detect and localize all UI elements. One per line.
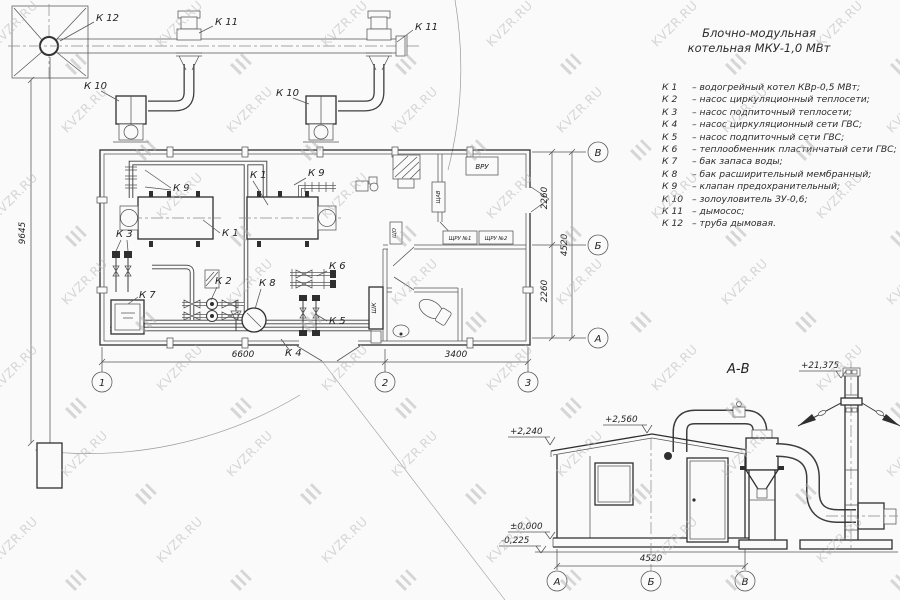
- guy-anchor-block: [37, 443, 62, 488]
- label-k9-left: К 9: [173, 183, 190, 194]
- mark-eaves: +2,240: [510, 427, 543, 437]
- shav-label: ЩАВ: [436, 190, 442, 203]
- label-k6: К 6: [329, 261, 346, 272]
- ash-collector-k10-right: К 10: [276, 88, 339, 142]
- duct-valve: [733, 407, 745, 417]
- label-k5: К 5: [329, 316, 346, 327]
- axis-3: 3: [525, 378, 531, 389]
- label-k7: К 7: [139, 290, 156, 301]
- section-title: А-В: [726, 362, 750, 377]
- flue-collector: [356, 155, 420, 191]
- title-line-1: Блочно-модульная: [628, 26, 890, 41]
- title-line-2: котельная МКУ-1,0 МВт: [628, 41, 890, 56]
- sho-label: ЩО: [392, 228, 398, 238]
- drawing-title: Блочно-модульная котельная МКУ-1,0 МВт: [628, 26, 890, 56]
- window: [595, 463, 633, 505]
- dim-depth-total: 4520: [560, 233, 570, 256]
- chimney-k12-plan: К 12: [12, 4, 119, 82]
- legend-items: К 1– водогрейный котел КВр-0,5 МВт; К 2–…: [628, 82, 890, 231]
- elevation-fan-and-stack: [776, 362, 900, 550]
- burner-circle: [319, 210, 336, 227]
- label-k12: К 12: [96, 13, 119, 24]
- flue-duct-plan: [8, 35, 422, 56]
- safety-valves-k9-left: К 9: [125, 167, 190, 194]
- mark-stack-top: +21,375: [801, 361, 840, 371]
- axis-a: А: [594, 334, 602, 345]
- elev-axis-v: В: [742, 577, 749, 588]
- flue-elbows-plan: [148, 64, 379, 106]
- legend-item: К 3– насос подпиточный теплосети;: [662, 107, 890, 119]
- burner-circle: [121, 210, 138, 227]
- pumps-k3: К 3: [112, 229, 133, 292]
- mark-zero: ±0,000: [510, 522, 543, 532]
- boiler-k1-left: [120, 191, 221, 247]
- plan-dimensions-right: 2260 2260 4520 В Б А: [532, 142, 608, 348]
- legend-item: К 7– бак запаса воды;: [662, 156, 890, 168]
- elevation-view: А-В: [499, 361, 900, 591]
- label-k11-right: К 11: [415, 22, 438, 33]
- label-k1-bottom: К 1: [222, 228, 239, 239]
- smoke-exhauster-k11-left: К 11: [176, 11, 238, 70]
- legend-item: К 6– теплообменник пластинчатый сети ГВС…: [662, 144, 890, 156]
- legend-item: К 10– золоуловитель ЗУ-0,6;: [662, 194, 890, 206]
- legend-item: К 12– труба дымовая.: [662, 218, 890, 230]
- label-k10-left: К 10: [84, 81, 107, 92]
- legend-item: К 1– водогрейный котел КВр-0,5 МВт;: [662, 82, 890, 94]
- boiler-k1-right: [239, 191, 344, 247]
- axis-1: 1: [99, 378, 105, 389]
- ash-collector-k10-left: К 10: [84, 81, 149, 142]
- guy-collar: [841, 398, 862, 405]
- label-k1-top: К 1: [250, 170, 267, 181]
- dim-span1: 6600: [232, 350, 255, 360]
- axis-2: 2: [382, 378, 388, 389]
- label-k8: К 8: [259, 278, 276, 289]
- label-k9-right: К 9: [308, 168, 325, 179]
- bathroom: [393, 295, 452, 337]
- drawing-canvas: 9645 К 12 К 10: [0, 0, 900, 600]
- dim-span2: 3400: [445, 350, 468, 360]
- mark-below: -0,225: [501, 536, 530, 546]
- plan-dimensions-bottom: 6600 3400 1 2 3: [92, 347, 538, 392]
- label-k10-right: К 10: [276, 88, 299, 99]
- shru2-label: ЩРУ №2: [485, 236, 508, 242]
- legend: Блочно-модульная котельная МКУ-1,0 МВт К…: [628, 26, 890, 231]
- label-k4: К 4: [285, 348, 302, 359]
- wall-vent: [664, 452, 672, 460]
- legend-item: К 5– насос подпиточный сети ГВС;: [662, 132, 890, 144]
- elev-axis-b: Б: [648, 577, 655, 588]
- shk-label: ШК: [371, 302, 378, 313]
- door-handle: [692, 498, 695, 501]
- elevation-building: [551, 434, 753, 547]
- legend-item: К 11– дымосос;: [662, 206, 890, 218]
- mark-ridge: +2,560: [605, 415, 638, 425]
- dim-depth2: 2260: [540, 279, 550, 302]
- legend-item: К 2– насос циркуляционный теплосети;: [662, 94, 890, 106]
- legend-item: К 4– насос циркуляционный сети ГВС;: [662, 119, 890, 131]
- sink: [393, 325, 409, 337]
- label-k4-group: К 4: [281, 339, 302, 359]
- label-k3: К 3: [116, 229, 133, 240]
- dim-depth1: 2260: [540, 186, 550, 209]
- label-k2: К 2: [215, 276, 232, 287]
- toilet: [416, 295, 452, 326]
- elev-axis-a: А: [553, 577, 561, 588]
- legend-item: К 8– бак расширительный мембранный;: [662, 169, 890, 181]
- axis-b: Б: [595, 241, 602, 252]
- axis-v: В: [595, 148, 602, 159]
- dim-elev-width: 4520: [640, 554, 663, 564]
- dim-chimney-offset: 9645: [18, 221, 28, 244]
- shru1-label: ЩРУ №1: [449, 236, 472, 242]
- label-k11-left: К 11: [215, 17, 238, 28]
- legend-item: К 9– клапан предохранительный;: [662, 181, 890, 193]
- vru-label: ВРУ: [475, 163, 489, 171]
